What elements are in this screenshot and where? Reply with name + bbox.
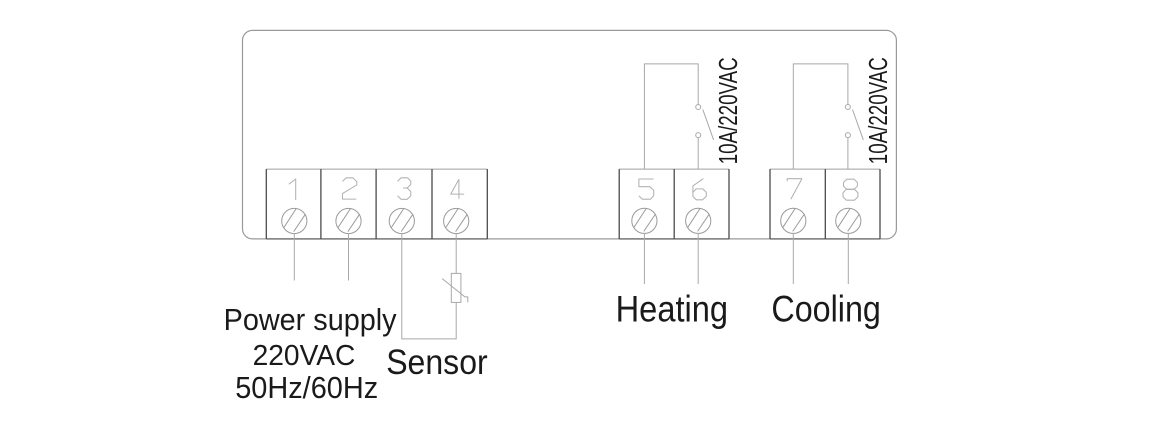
svg-text:50Hz/60Hz: 50Hz/60Hz xyxy=(235,371,378,405)
svg-text:Sensor: Sensor xyxy=(386,343,488,382)
svg-text:Heating: Heating xyxy=(616,287,729,329)
svg-text:Power supply: Power supply xyxy=(224,303,398,337)
svg-text:Cooling: Cooling xyxy=(771,287,881,329)
svg-text:220VAC: 220VAC xyxy=(253,340,356,372)
svg-text:10A/220VAC: 10A/220VAC xyxy=(865,57,893,164)
svg-text:10A/220VAC: 10A/220VAC xyxy=(715,57,743,164)
